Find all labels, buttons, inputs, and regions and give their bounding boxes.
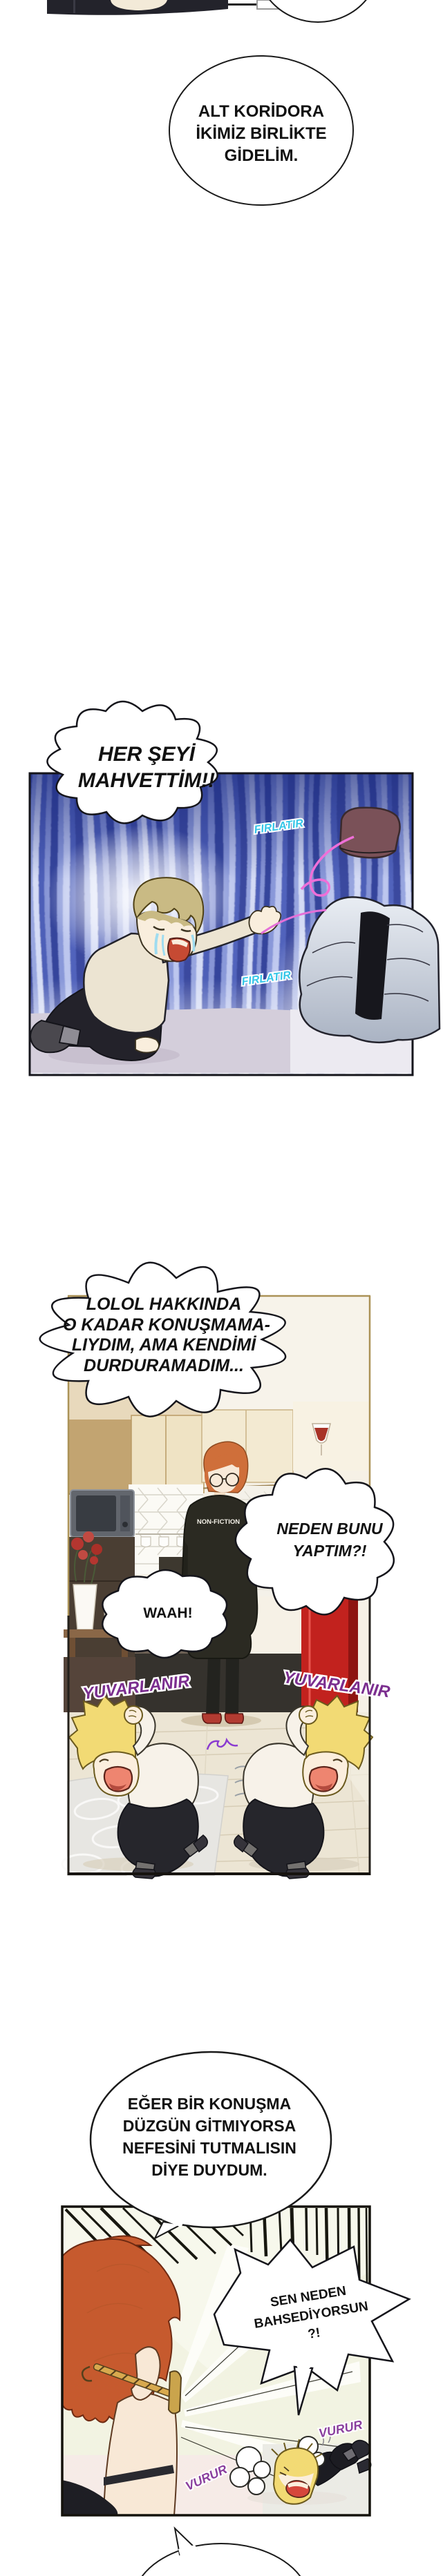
svg-text:GİDELİM.: GİDELİM.: [225, 146, 299, 165]
svg-text:LIYDIM, AMA KENDİMİ: LIYDIM, AMA KENDİMİ: [72, 1335, 257, 1355]
svg-text:İKİMİZ BİRLİKTE: İKİMİZ BİRLİKTE: [196, 124, 326, 143]
svg-text:DÜZGÜN GİTMIYORSA: DÜZGÜN GİTMIYORSA: [123, 2117, 296, 2135]
svg-text:HER ŞEYİ: HER ŞEYİ: [98, 743, 196, 766]
svg-text:YAPTIM?!: YAPTIM?!: [293, 1542, 367, 1560]
svg-text:O KADAR KONUŞMAMA-: O KADAR KONUŞMAMA-: [63, 1315, 270, 1335]
svg-text:NEFESİNİ TUTMALISIN: NEFESİNİ TUTMALISIN: [122, 2139, 296, 2157]
svg-text:?!: ?!: [307, 2325, 321, 2342]
svg-text:DİYE DUYDUM.: DİYE DUYDUM.: [151, 2161, 267, 2179]
svg-text:LOLOL HAKKINDA: LOLOL HAKKINDA: [86, 1295, 242, 1314]
svg-text:MAHVETTİM!!: MAHVETTİM!!: [78, 769, 215, 792]
svg-text:DURDURAMADIM...: DURDURAMADIM...: [84, 1356, 244, 1375]
svg-text:ALT KORİDORA: ALT KORİDORA: [198, 102, 324, 121]
svg-text:NEDEN BUNU: NEDEN BUNU: [276, 1520, 384, 1538]
svg-text:WAAH!: WAAH!: [143, 1605, 192, 1621]
svg-text:EĞER BİR KONUŞMA: EĞER BİR KONUŞMA: [128, 2094, 291, 2113]
svg-text:NON-FICTION: NON-FICTION: [197, 1518, 240, 1526]
